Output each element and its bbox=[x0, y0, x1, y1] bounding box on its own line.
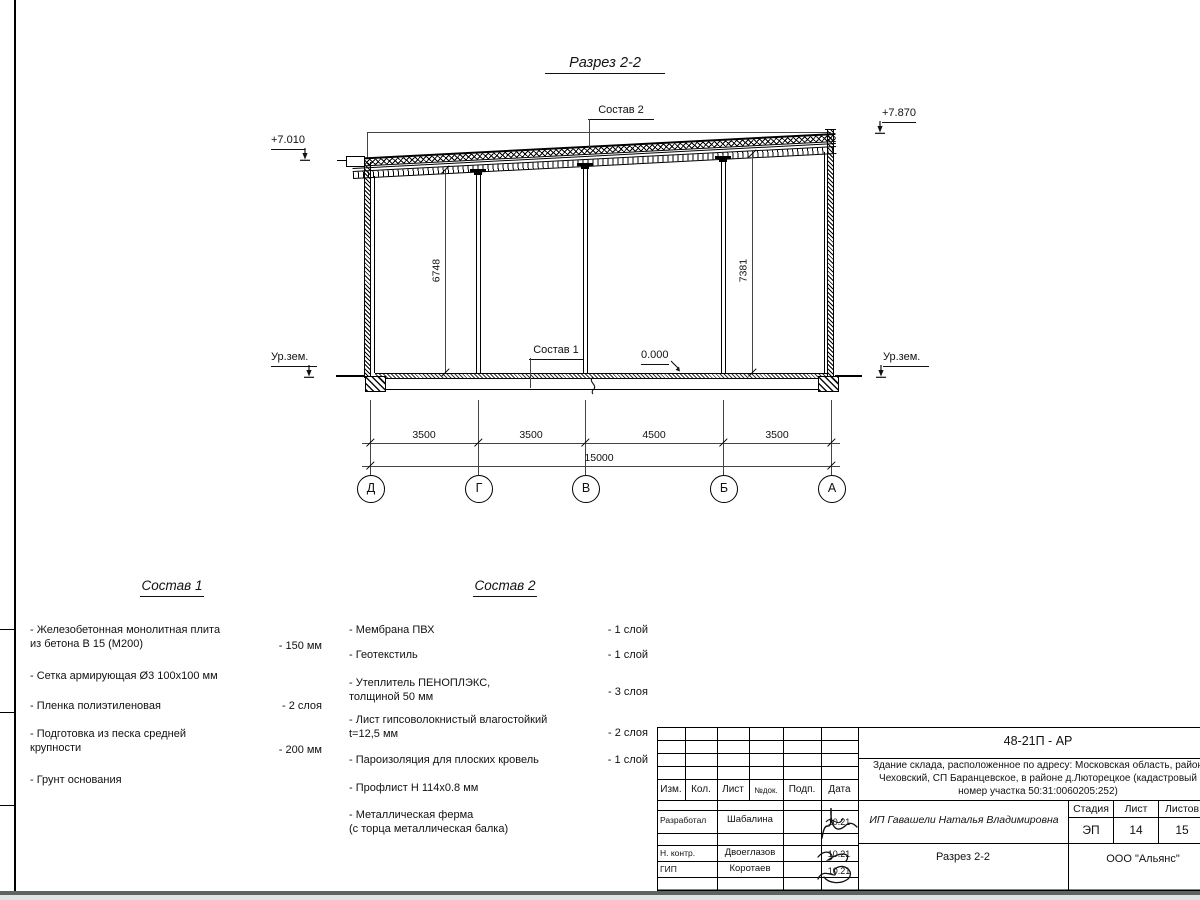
axis-bubble: Д bbox=[357, 475, 385, 503]
left-footing bbox=[365, 376, 386, 392]
stamp-role: ГИП bbox=[660, 864, 716, 874]
view-title: Разрез 2-2 bbox=[545, 54, 665, 74]
stamp-col-podp: Подп. bbox=[783, 784, 821, 795]
roof-assembly bbox=[352, 133, 836, 179]
parapet-cap bbox=[825, 129, 836, 131]
list-item-value: - 150 мм bbox=[279, 640, 322, 654]
zero-level-arrow-icon bbox=[670, 361, 684, 374]
list-item-value: - 200 мм bbox=[279, 744, 322, 758]
axis-bubble: Б bbox=[710, 475, 738, 503]
edge-beam-tick bbox=[337, 160, 346, 161]
document-code: 48-21П - АР bbox=[858, 734, 1200, 748]
stamp-role: Разработал bbox=[660, 815, 716, 825]
list-item-value: - 1 слой bbox=[608, 624, 648, 638]
break-symbol bbox=[583, 376, 603, 396]
list-item-value: - 1 слой bbox=[608, 754, 648, 768]
list-item: - Металлическая ферма (с торца металличе… bbox=[349, 809, 508, 837]
sostav1-list: Состав 1 - Железобетонная монолитная пли… bbox=[28, 578, 324, 798]
drawing-sheet: { "drawing": { "title": "Разрез 2-2", "e… bbox=[0, 0, 1200, 900]
list-item-value: - 2 слоя bbox=[282, 700, 322, 714]
list-item: - Утеплитель ПЕНОПЛЭКС, толщиной 50 мм bbox=[349, 677, 490, 705]
stage-value: ЭП bbox=[1069, 823, 1113, 837]
stamp-col-list: Лист bbox=[717, 784, 749, 795]
axis-line bbox=[478, 400, 479, 475]
dim-line-vertical bbox=[752, 154, 753, 373]
list-item-value: - 2 слоя bbox=[608, 727, 648, 741]
dim-line-vertical bbox=[445, 170, 446, 373]
list-item-value: - 3 слоя bbox=[608, 686, 648, 700]
dim-label: 3500 bbox=[511, 429, 551, 442]
stage-label: Стадия bbox=[1069, 803, 1113, 815]
level-extension bbox=[367, 132, 368, 159]
axis-bubble: Г bbox=[465, 475, 493, 503]
left-wall bbox=[364, 162, 371, 378]
customer-name: ИП Гавашели Наталья Владимировна bbox=[862, 814, 1066, 826]
sostav2-heading: Состав 2 bbox=[473, 578, 537, 597]
stamp-name: Шабалина bbox=[717, 814, 783, 825]
frame-tick bbox=[0, 712, 14, 713]
signature bbox=[812, 800, 860, 845]
list-item: - Пленка полиэтиленовая bbox=[30, 700, 161, 714]
dim-label: 3500 bbox=[757, 429, 797, 442]
column bbox=[721, 162, 726, 374]
edge-beam bbox=[346, 156, 365, 167]
right-wall bbox=[827, 130, 834, 378]
level-arrow-icon bbox=[873, 365, 889, 379]
stamp-col-data: Дата bbox=[821, 784, 858, 795]
sostav1-callout: Состав 1 bbox=[529, 344, 583, 360]
zero-level-label: 0.000 bbox=[641, 349, 669, 365]
list-item: - Подготовка из песка средней крупности bbox=[30, 728, 186, 756]
dim-label: 4500 bbox=[634, 429, 674, 442]
list-item: - Грунт основания bbox=[30, 774, 122, 788]
axis-bubble: А bbox=[818, 475, 846, 503]
stamp-name: Коротаев bbox=[717, 863, 783, 874]
sheet-label: Лист bbox=[1114, 803, 1158, 815]
object-description-line: Здание склада, расположенное по адресу: … bbox=[858, 760, 1200, 771]
level-arrow-icon bbox=[872, 121, 888, 135]
list-item: - Пароизоляция для плоских кровель bbox=[349, 754, 539, 768]
right-wall-inner-face bbox=[824, 152, 825, 373]
list-item: - Профлист Н 114х0.8 мм bbox=[349, 782, 478, 796]
object-description-line: номер участка 50:31:0060205:252) bbox=[858, 786, 1200, 797]
list-item: - Геотекстиль bbox=[349, 649, 418, 663]
list-item: - Железобетонная монолитная плита из бет… bbox=[30, 624, 220, 652]
frame-tick bbox=[0, 629, 14, 630]
right-footing bbox=[818, 376, 839, 392]
sostav1-heading: Состав 1 bbox=[140, 578, 204, 597]
column bbox=[583, 169, 588, 374]
sheet-value: 14 bbox=[1114, 823, 1158, 837]
company-name: ООО "Альянс" bbox=[1070, 853, 1200, 865]
sostav2-list: Состав 2 - Мембрана ПВХ - 1 слой - Геоте… bbox=[345, 578, 648, 843]
left-wall-inner-face bbox=[374, 176, 375, 373]
dim-label-total: 15000 bbox=[573, 452, 625, 465]
sostav2-callout: Состав 2 bbox=[588, 104, 654, 120]
object-description-line: Чеховский, СП Баранцевское, в районе д.Л… bbox=[858, 773, 1200, 784]
level-arrow-icon bbox=[297, 148, 313, 162]
dim-label: 3500 bbox=[404, 429, 444, 442]
stamp-name: Двоеглазов bbox=[717, 847, 783, 858]
stamp-col-izm: Изм. bbox=[657, 784, 685, 795]
level-arrow-icon bbox=[301, 365, 317, 379]
dimension-line bbox=[362, 443, 840, 444]
page-edge-shadow bbox=[0, 895, 1200, 900]
ground-line-right bbox=[835, 375, 862, 377]
frame-tick bbox=[0, 805, 14, 806]
dimension-line bbox=[362, 466, 840, 467]
list-item: - Лист гипсоволокнистый влагостойкий t=1… bbox=[349, 714, 547, 742]
stamp-col-kol: Кол. bbox=[685, 784, 717, 795]
list-item: - Сетка армирующая Ø3 100х100 мм bbox=[30, 670, 218, 684]
level-line bbox=[367, 132, 831, 133]
axis-line bbox=[723, 400, 724, 475]
sheets-value: 15 bbox=[1159, 823, 1200, 837]
list-item: - Мембрана ПВХ bbox=[349, 624, 434, 638]
ground-level-label-right: Ур.зем. bbox=[883, 351, 929, 367]
dim-label-height-left: 6748 bbox=[430, 256, 443, 286]
sheets-label: Листов bbox=[1159, 803, 1200, 815]
frame-left-border bbox=[14, 0, 16, 891]
dim-label-height-right: 7381 bbox=[737, 256, 750, 286]
sostav1-leader bbox=[530, 358, 531, 388]
drawing-name: Разрез 2-2 bbox=[860, 851, 1066, 863]
sostav2-leader bbox=[589, 119, 590, 147]
axis-bubble: В bbox=[572, 475, 600, 503]
signature bbox=[810, 843, 860, 887]
list-item-value: - 1 слой bbox=[608, 649, 648, 663]
column bbox=[476, 175, 481, 374]
stamp-role: Н. контр. bbox=[660, 848, 716, 858]
ground-line-left bbox=[336, 375, 365, 377]
stamp-col-ndok: №док. bbox=[749, 786, 783, 795]
